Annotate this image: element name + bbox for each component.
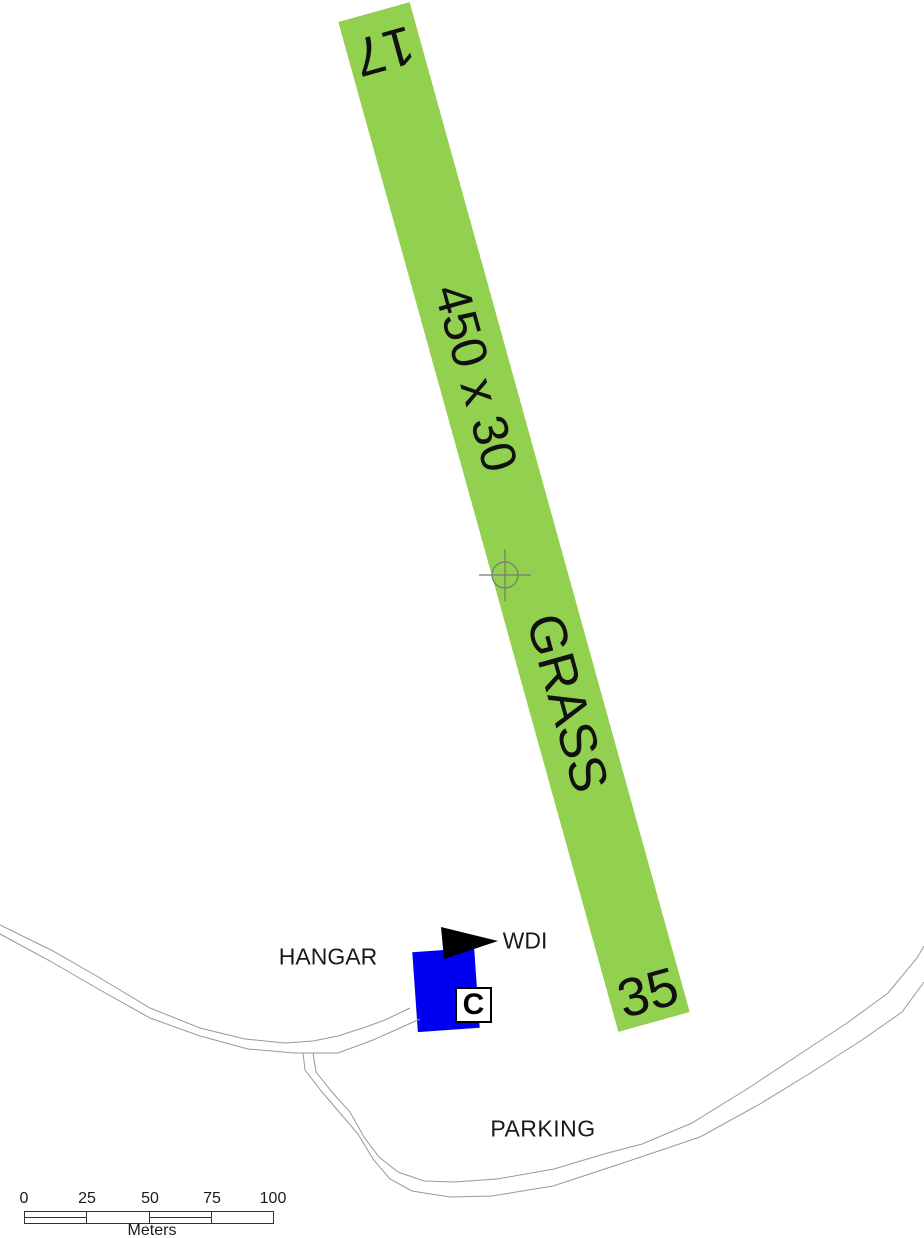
scale-tick-100: 100 — [260, 1190, 287, 1208]
map-line-layer — [0, 0, 924, 1238]
scale-tick-75: 75 — [203, 1190, 221, 1208]
wdi-label: WDI — [503, 928, 548, 955]
parking-label: PARKING — [490, 1116, 595, 1143]
code-letter: C — [463, 988, 485, 1022]
wind-direction-indicator-icon — [441, 927, 498, 959]
airfield-diagram: C 17 450 x 30 GRASS 35 HANGAR WDI PARKIN… — [0, 0, 924, 1238]
scale-unit-label: Meters — [128, 1222, 177, 1238]
hangar-label: HANGAR — [279, 944, 377, 971]
code-box: C — [455, 987, 492, 1023]
scale-tick-25: 25 — [78, 1190, 96, 1208]
scale-tick-0: 0 — [20, 1190, 29, 1208]
crosshair-icon — [479, 549, 531, 601]
scale-tick-50: 50 — [141, 1190, 159, 1208]
